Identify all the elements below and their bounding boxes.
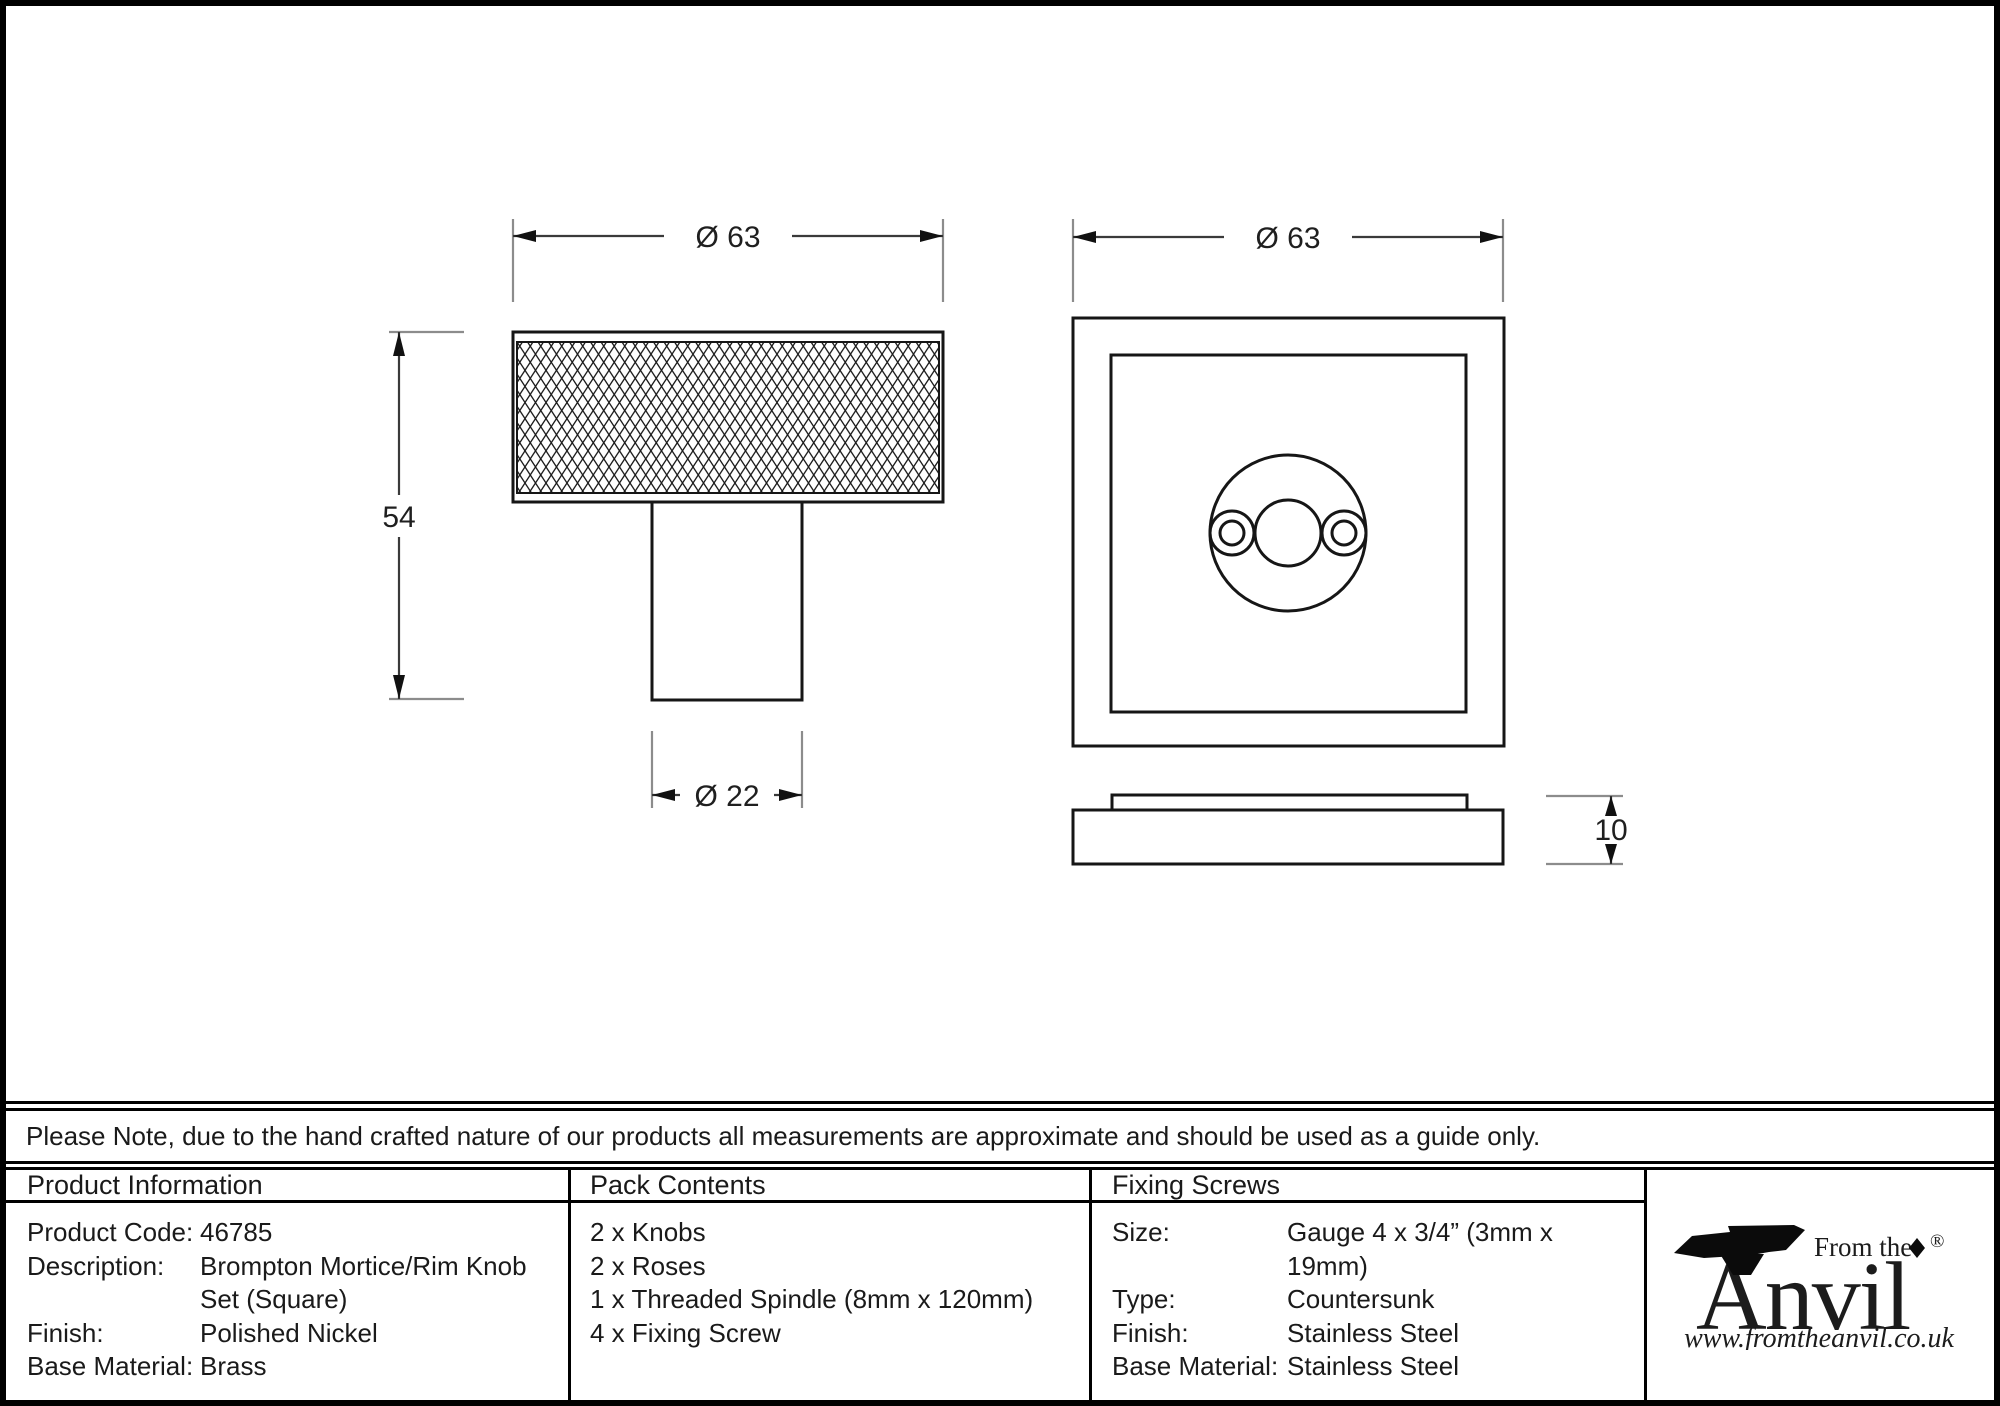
knob-stem-outline: [652, 502, 802, 700]
arrow-down-icon: [1605, 844, 1617, 864]
header-fixing-screws-label: Fixing Screws: [1112, 1170, 1280, 1201]
knob-diameter-label: Ø 63: [695, 221, 760, 254]
rose-side-base: [1073, 810, 1503, 864]
spec-value: Polished Nickel: [200, 1317, 558, 1351]
spec-value: Stainless Steel: [1287, 1350, 1634, 1384]
product-spec-sheet: Ø 63 54 Ø 22 Ø 63: [0, 0, 2000, 1406]
rose-diameter-label: Ø 63: [1255, 222, 1320, 255]
arrow-up-icon: [393, 332, 405, 356]
spec-value: 46785: [200, 1216, 558, 1250]
rose-side-lip: [1112, 795, 1467, 810]
header-product-information-label: Product Information: [27, 1170, 263, 1201]
rose-inner-square: [1111, 355, 1466, 712]
spec-label: Finish:: [1112, 1317, 1287, 1351]
header-product-information: Product Information: [6, 1170, 571, 1203]
spec-label: Type:: [1112, 1283, 1287, 1317]
knob-knurled-band: [517, 342, 939, 493]
rose-side-view: 10: [1073, 795, 1628, 864]
table-row: Base Material: Stainless Steel: [1112, 1350, 1634, 1384]
spec-label: Description:: [27, 1250, 200, 1317]
spec-value: Stainless Steel: [1287, 1317, 1634, 1351]
spec-label: Size:: [1112, 1216, 1287, 1283]
list-item: 4 x Fixing Screw: [590, 1317, 1079, 1351]
table-row: Base Material: Brass: [27, 1350, 558, 1384]
spec-label: Product Code:: [27, 1216, 200, 1250]
table-row: Size: Gauge 4 x 3/4” (3mm x 19mm): [1112, 1216, 1634, 1283]
rose-thickness-label: 10: [1594, 814, 1627, 847]
from-the-anvil-logo: Anvil From the ® www.fromtheanvil.co.uk: [1674, 1225, 1964, 1350]
logo-website: www.fromtheanvil.co.uk: [1684, 1323, 1954, 1350]
arrow-down-icon: [393, 675, 405, 699]
product-information-cell: Product Code: 46785 Description: Brompto…: [6, 1203, 571, 1400]
arrow-up-icon: [1605, 796, 1617, 816]
table-row: Type: Countersunk: [1112, 1283, 1634, 1317]
arrow-left-icon: [1073, 231, 1096, 243]
table-row: Product Code: 46785: [27, 1216, 558, 1250]
table-header-row: Product Information Pack Contents Fixing…: [6, 1167, 1994, 1203]
logo-tagline: From the: [1814, 1232, 1912, 1262]
spec-value: Countersunk: [1287, 1283, 1634, 1317]
header-fixing-screws: Fixing Screws: [1092, 1170, 1647, 1203]
technical-drawing: Ø 63 54 Ø 22 Ø 63: [0, 0, 2000, 1104]
table-row: Finish: Stainless Steel: [1112, 1317, 1634, 1351]
arrow-right-icon: [1480, 231, 1503, 243]
pack-contents-cell: 2 x Knobs 2 x Roses 1 x Threaded Spindle…: [571, 1203, 1092, 1400]
spec-label: Finish:: [27, 1317, 200, 1351]
list-item: 2 x Knobs: [590, 1216, 1079, 1250]
spec-value: Brompton Mortice/Rim Knob Set (Square): [200, 1250, 558, 1317]
drawing-area-bottom-rule: [6, 1101, 1994, 1104]
knob-height-label: 54: [382, 501, 415, 534]
stem-diameter-label: Ø 22: [694, 780, 759, 813]
table-row: Description: Brompton Mortice/Rim Knob S…: [27, 1250, 558, 1317]
list-item: 1 x Threaded Spindle (8mm x 120mm): [590, 1283, 1079, 1317]
spec-label: Base Material:: [27, 1350, 200, 1384]
table-row: Finish: Polished Nickel: [27, 1317, 558, 1351]
spec-value: Brass: [200, 1350, 558, 1384]
brand-logo-cell: Anvil From the ® www.fromtheanvil.co.uk: [1647, 1203, 1994, 1400]
note-row: Please Note, due to the hand crafted nat…: [6, 1108, 1994, 1164]
arrow-left-icon: [652, 789, 675, 801]
spec-label: Base Material:: [1112, 1350, 1287, 1384]
spec-value: Gauge 4 x 3/4” (3mm x 19mm): [1287, 1216, 1634, 1283]
note-text: Please Note, due to the hand crafted nat…: [26, 1121, 1540, 1152]
registered-trademark-icon: ®: [1930, 1231, 1944, 1252]
fixing-screws-cell: Size: Gauge 4 x 3/4” (3mm x 19mm) Type: …: [1092, 1203, 1647, 1400]
table-data-row: Product Code: 46785 Description: Brompto…: [6, 1203, 1994, 1400]
header-logo-cell: [1647, 1170, 1994, 1203]
header-pack-contents-label: Pack Contents: [590, 1170, 766, 1201]
rose-front-view: Ø 63: [1073, 219, 1504, 746]
header-pack-contents: Pack Contents: [571, 1170, 1092, 1203]
arrow-right-icon: [920, 230, 943, 242]
arrow-left-icon: [513, 230, 536, 242]
arrow-right-icon: [779, 789, 802, 801]
knob-side-view: Ø 63 54 Ø 22: [382, 219, 943, 813]
list-item: 2 x Roses: [590, 1250, 1079, 1284]
